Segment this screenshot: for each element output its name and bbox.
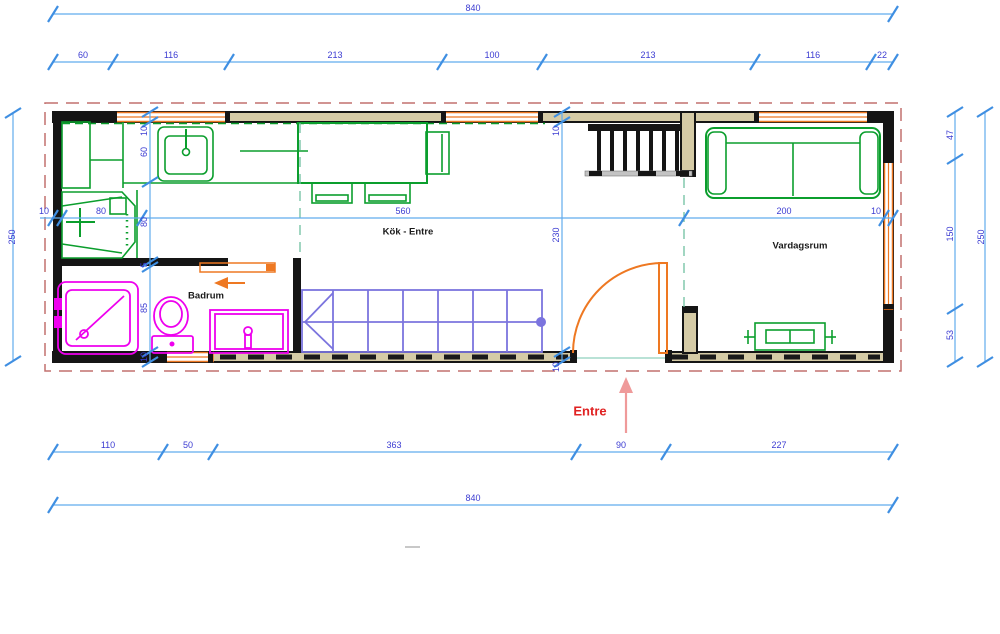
window: [883, 158, 894, 309]
shower: [54, 282, 138, 354]
floor-plan-page: Entre 8406011621310021311622250471505325…: [0, 0, 1000, 634]
window: [441, 111, 543, 123]
entrance-arrow: [619, 377, 633, 433]
window: [112, 111, 230, 123]
staircase: [585, 124, 692, 176]
bathroom-door: [200, 263, 275, 289]
chair: [312, 183, 352, 203]
window: [754, 111, 872, 123]
entrance-door: [573, 263, 667, 358]
wardrobe: [302, 290, 546, 352]
dining-table: [298, 123, 427, 183]
chair: [426, 132, 449, 174]
sofa: [706, 128, 880, 198]
kitchen-sink: [158, 127, 213, 181]
radiator: [744, 323, 836, 350]
windows: [112, 111, 894, 363]
chair: [365, 183, 410, 203]
bathroom-sink: [210, 310, 288, 353]
floor-plan-drawing: [0, 0, 1000, 634]
toilet: [152, 297, 193, 353]
armchair: [62, 192, 135, 258]
dimension-ticks: [5, 6, 993, 513]
